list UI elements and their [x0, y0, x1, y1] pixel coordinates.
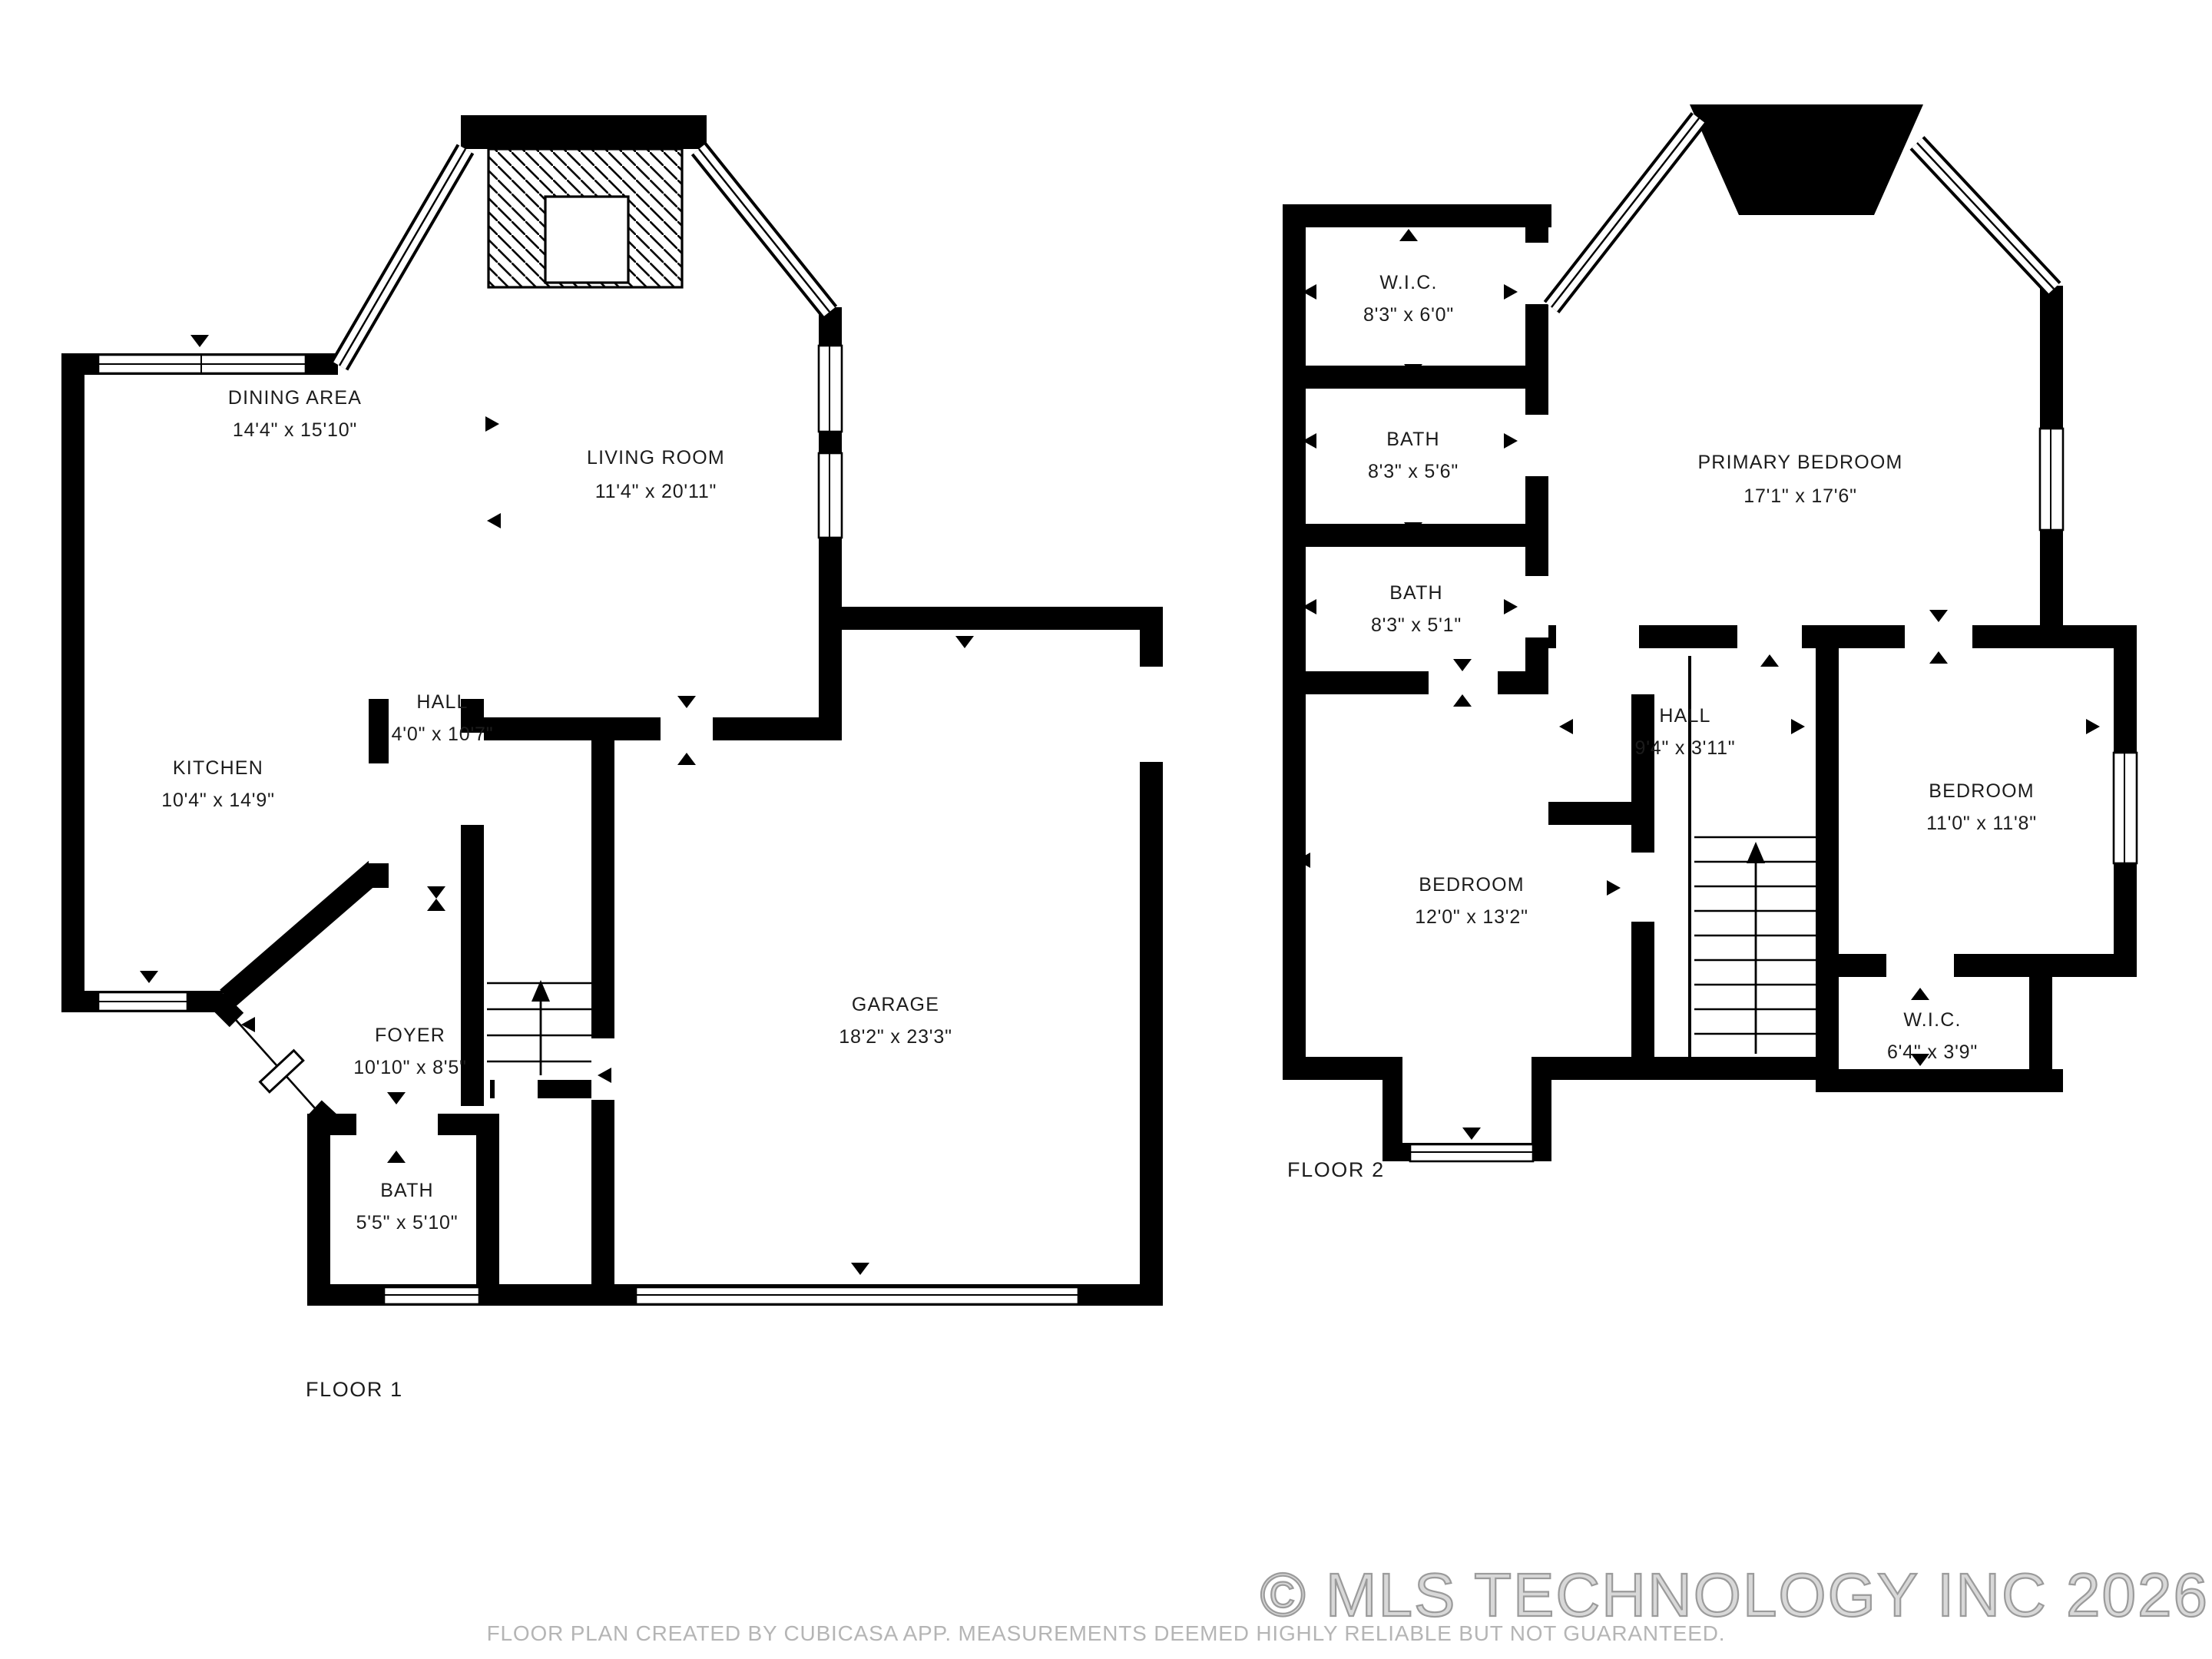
room-label-dining-area: DINING AREA	[228, 387, 362, 409]
floor2-label: FLOOR 2	[1287, 1158, 1385, 1181]
room-label-bath-lower: BATH	[1389, 582, 1443, 604]
room-label-bedroom2: BEDROOM	[1929, 780, 2035, 802]
kitchen-window	[98, 992, 187, 1011]
floor2-plan: W.I.C. 8'3" x 6'0" BATH 8'3" x 5'6" BATH…	[1283, 104, 2137, 1181]
room-dims-bath-upper: 8'3" x 5'6"	[1368, 461, 1459, 482]
room-label-living-room: LIVING ROOM	[587, 447, 725, 469]
room-dims-bath1: 5'5" x 5'10"	[356, 1212, 459, 1233]
room-dims-bedroom1: 12'0" x 13'2"	[1415, 906, 1528, 928]
room-label-primary-bedroom: PRIMARY BEDROOM	[1697, 452, 1902, 473]
room-dims-hall2: 9'4" x 3'11"	[1635, 737, 1736, 759]
room-label-bath1: BATH	[380, 1180, 434, 1201]
room-label-hall2: HALL	[1659, 705, 1710, 727]
stair-up-arrow-icon	[1747, 842, 1765, 863]
kitchen-diagonal-wall	[227, 869, 376, 998]
floor1-plan: DINING AREA 14'4" x 15'10" LIVING ROOM 1…	[61, 115, 1163, 1401]
dining-window	[98, 355, 306, 373]
bay-window-right	[699, 149, 829, 312]
room-label-bath-upper: BATH	[1386, 429, 1440, 450]
room-dims-wic2: 6'4" x 3'9"	[1887, 1041, 1978, 1063]
room-label-wic2: W.I.C.	[1903, 1009, 1961, 1031]
entry-door	[217, 1000, 335, 1126]
room-label-foyer: FOYER	[375, 1025, 445, 1046]
room-dims-bath-lower: 8'3" x 5'1"	[1371, 614, 1462, 636]
bedroom1-window	[1410, 1144, 1533, 1161]
copyright-watermark: © MLS TECHNOLOGY INC 2026	[1260, 1561, 2209, 1629]
room-label-bedroom1: BEDROOM	[1419, 874, 1525, 896]
room-dims-foyer: 10'10" x 8'5"	[353, 1057, 467, 1078]
room-label-kitchen: KITCHEN	[173, 757, 263, 779]
floorplan-canvas: DINING AREA 14'4" x 15'10" LIVING ROOM 1…	[0, 0, 2212, 1659]
bath1-window	[384, 1287, 479, 1304]
living-room-window-lower	[819, 453, 842, 538]
room-dims-wic1: 8'3" x 6'0"	[1363, 304, 1454, 326]
primary-bay-window-left	[1551, 118, 1699, 307]
floor1-stairs	[487, 980, 591, 1075]
primary-bedroom-window	[2040, 429, 2063, 530]
floor2-stairs	[1694, 837, 1816, 1054]
bedro om2-window	[2114, 753, 2137, 863]
room-label-garage: GARAGE	[852, 994, 939, 1015]
room-dims-garage: 18'2" x 23'3"	[839, 1026, 952, 1048]
room-dims-dining-area: 14'4" x 15'10"	[233, 419, 357, 441]
fireplace	[488, 149, 682, 287]
room-label-wic1: W.I.C.	[1379, 272, 1437, 293]
bay-window-left	[339, 149, 465, 366]
garage-door	[636, 1287, 1078, 1304]
room-label-hall: HALL	[416, 691, 468, 713]
room-dims-primary-bedroom: 17'1" x 17'6"	[1743, 485, 1857, 507]
floor1-label: FLOOR 1	[306, 1378, 403, 1401]
footer: FLOOR PLAN CREATED BY CUBICASA APP. MEAS…	[487, 1561, 2209, 1645]
room-dims-hall: 4'0" x 10'7"	[392, 724, 494, 745]
room-dims-bedroom2: 11'0" x 11'8"	[1926, 813, 2037, 834]
fireplace-firebox	[545, 197, 628, 283]
room-dims-kitchen: 10'4" x 14'9"	[161, 790, 275, 811]
room-dims-living-room: 11'4" x 20'11"	[595, 481, 717, 502]
door-leaf-icon	[260, 1051, 303, 1092]
living-room-window-upper	[819, 346, 842, 432]
floor1-walls	[61, 115, 1163, 1306]
primary-bay-window-right	[1917, 143, 2054, 289]
